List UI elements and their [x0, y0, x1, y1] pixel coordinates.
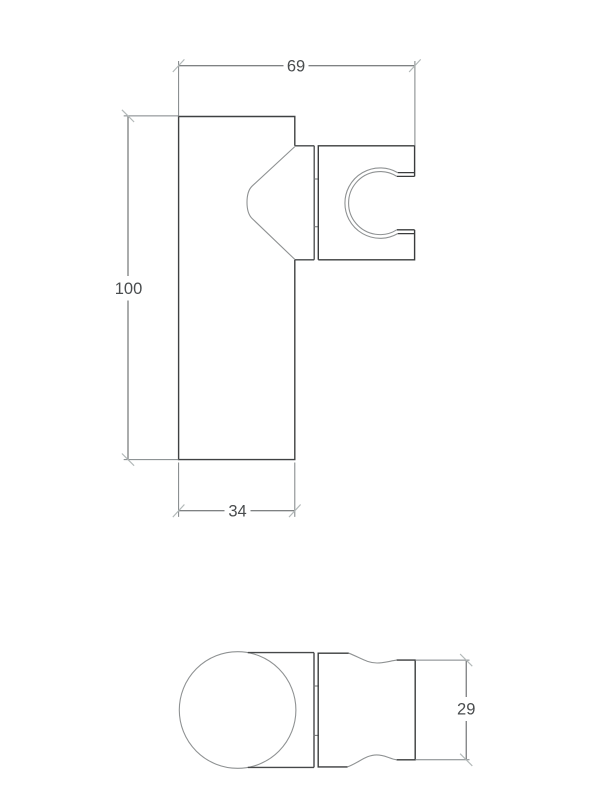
- svg-text:29: 29: [457, 701, 475, 719]
- svg-text:100: 100: [115, 280, 143, 298]
- svg-text:34: 34: [228, 503, 246, 521]
- svg-text:69: 69: [287, 57, 305, 75]
